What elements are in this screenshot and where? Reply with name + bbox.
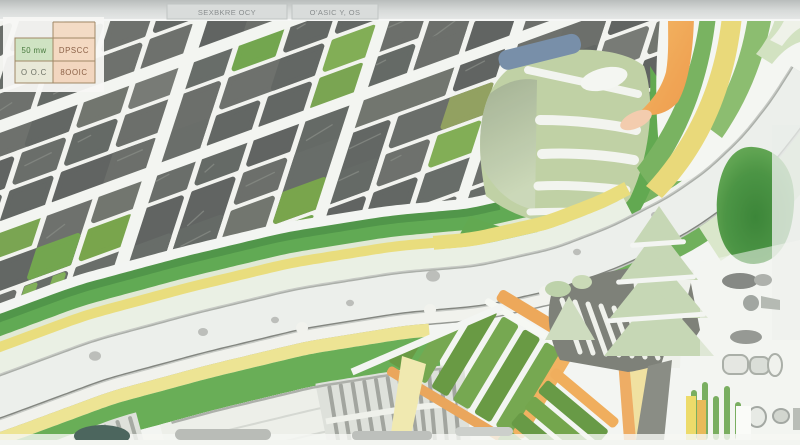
svg-text:SEXBKRE OCY: SEXBKRE OCY	[198, 8, 256, 17]
svg-text:O O.C: O O.C	[21, 68, 47, 77]
svg-text:DPSCC: DPSCC	[59, 46, 89, 55]
svg-text:50 mw: 50 mw	[22, 46, 47, 55]
svg-text:O’ASIC Y, OS: O’ASIC Y, OS	[310, 8, 361, 17]
svg-text:8OOIC: 8OOIC	[60, 68, 87, 77]
